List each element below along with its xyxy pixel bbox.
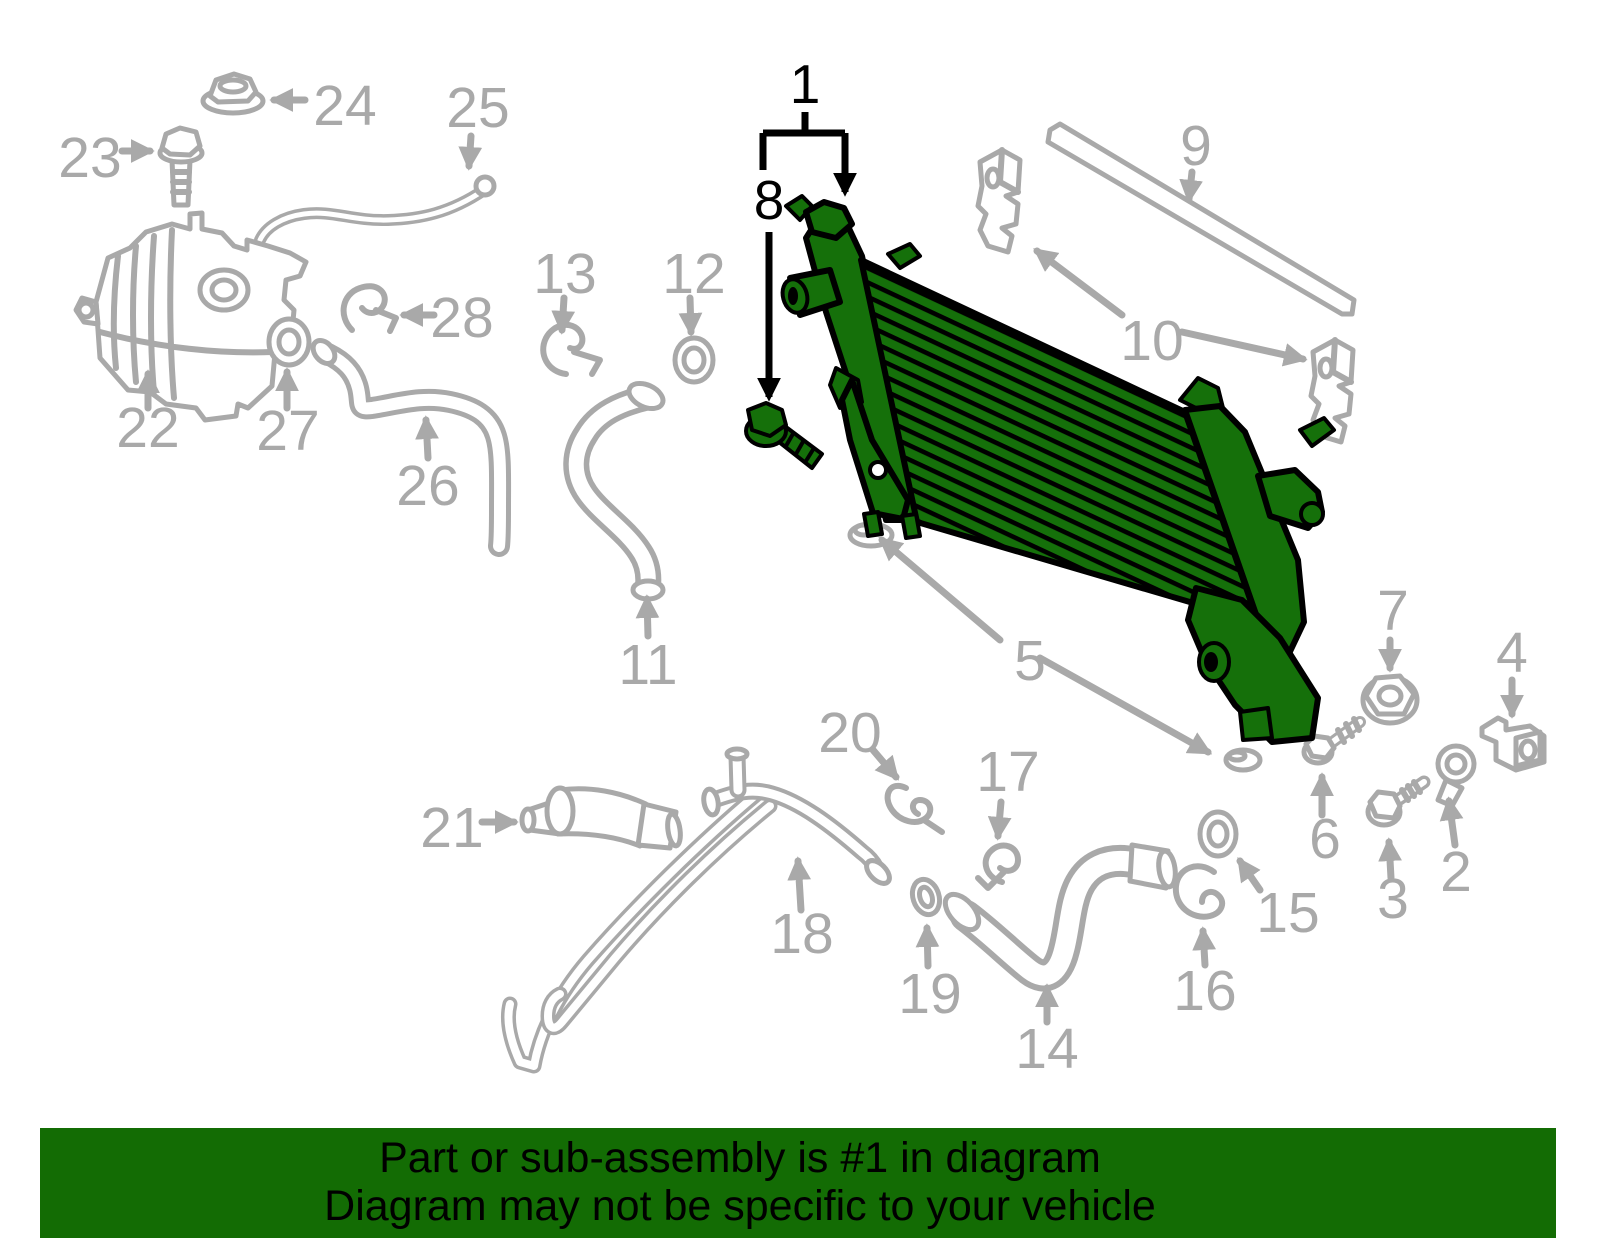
- note-banner-line1: Part or sub-assembly is #1 in diagram: [379, 1134, 1101, 1182]
- part-22-coolant-reservoir: [76, 213, 306, 420]
- label-27: 27: [256, 399, 319, 463]
- part-3-screw: [1368, 782, 1424, 825]
- label-21: 21: [420, 796, 483, 860]
- label-15: 15: [1256, 881, 1319, 945]
- label-23: 23: [58, 126, 121, 190]
- part-24-cap-nut: [203, 74, 263, 113]
- part-8-bolt-highlighted: [746, 403, 822, 468]
- label-8: 8: [754, 169, 785, 231]
- label-17: 17: [976, 740, 1039, 804]
- part-16-clip: [1176, 866, 1222, 916]
- part-5-mount-pad-right: [1226, 750, 1260, 770]
- note-banner-line2: Diagram may not be specific to your vehi…: [324, 1182, 1156, 1230]
- label-25: 25: [446, 76, 509, 140]
- part-10-bracket-left: [978, 150, 1020, 252]
- parts-diagram: 23 24 25 22 27 28 26 13 12 11 9 10 5 7 4…: [0, 0, 1600, 1249]
- label-28: 28: [430, 286, 493, 350]
- label-4: 4: [1496, 621, 1528, 685]
- label-14: 14: [1015, 1017, 1078, 1081]
- part-14-lower-hose: [939, 845, 1177, 976]
- label-1: 1: [790, 53, 821, 115]
- part-20-clip: [888, 786, 942, 832]
- label-7: 7: [1377, 579, 1409, 643]
- part-2-ring-terminal: [1438, 746, 1474, 806]
- part-1-radiator-highlighted: [779, 196, 1334, 742]
- part-12-o-ring: [675, 338, 713, 382]
- parts-diagram-page: 23 24 25 22 27 28 26 13 12 11 9 10 5 7 4…: [0, 0, 1600, 1249]
- part-25-overflow-tube: [260, 177, 494, 240]
- part-11-hose: [576, 378, 667, 599]
- label-13: 13: [533, 242, 596, 306]
- part-27-grommet: [269, 319, 309, 365]
- label-18: 18: [770, 902, 833, 966]
- label-22: 22: [116, 396, 179, 460]
- part-7-nut: [1363, 676, 1417, 723]
- label-12: 12: [662, 242, 725, 306]
- label-16: 16: [1173, 959, 1236, 1023]
- label-26: 26: [396, 454, 459, 518]
- part-28-clip: [344, 286, 396, 331]
- label-10: 10: [1120, 309, 1183, 373]
- part-15-grommet: [1200, 812, 1236, 856]
- part-19-o-ring: [908, 876, 944, 918]
- part-17-clip: [978, 845, 1018, 888]
- part-23-bolt: [160, 128, 202, 205]
- label-6: 6: [1309, 807, 1341, 871]
- label-9: 9: [1180, 114, 1212, 178]
- part-4-sensor: [1482, 718, 1544, 770]
- label-24: 24: [313, 74, 376, 138]
- label-3: 3: [1377, 867, 1409, 931]
- label-19: 19: [898, 962, 961, 1026]
- label-5: 5: [1014, 629, 1046, 693]
- label-2: 2: [1440, 840, 1472, 904]
- part-21-connector-hose: [522, 788, 682, 848]
- part-13-clip: [543, 325, 600, 374]
- label-20: 20: [818, 701, 881, 765]
- note-banner: Part or sub-assembly is #1 in diagram Di…: [40, 1128, 1556, 1238]
- label-11: 11: [618, 633, 677, 697]
